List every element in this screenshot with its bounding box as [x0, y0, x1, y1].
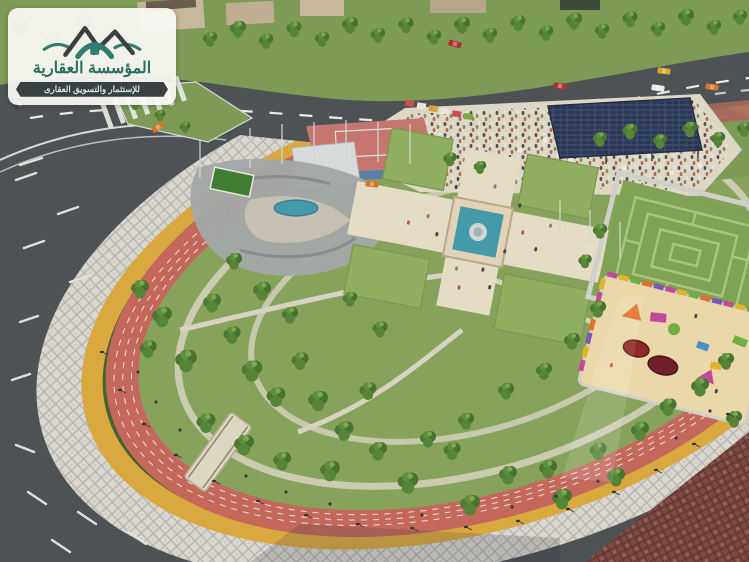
central-fountain	[443, 197, 513, 267]
logo-title: المؤسسة العقارية	[16, 61, 168, 78]
logo-subtitle-ribbon: للإستثمار والتسويق العقارى	[16, 82, 168, 97]
company-logo-card: المؤسسة العقارية للإستثمار والتسويق العق…	[8, 8, 176, 105]
park-aerial-rendering: المؤسسة العقارية للإستثمار والتسويق العق…	[0, 0, 749, 562]
mountains-house-icon	[32, 14, 152, 60]
splash-pool	[274, 200, 318, 216]
